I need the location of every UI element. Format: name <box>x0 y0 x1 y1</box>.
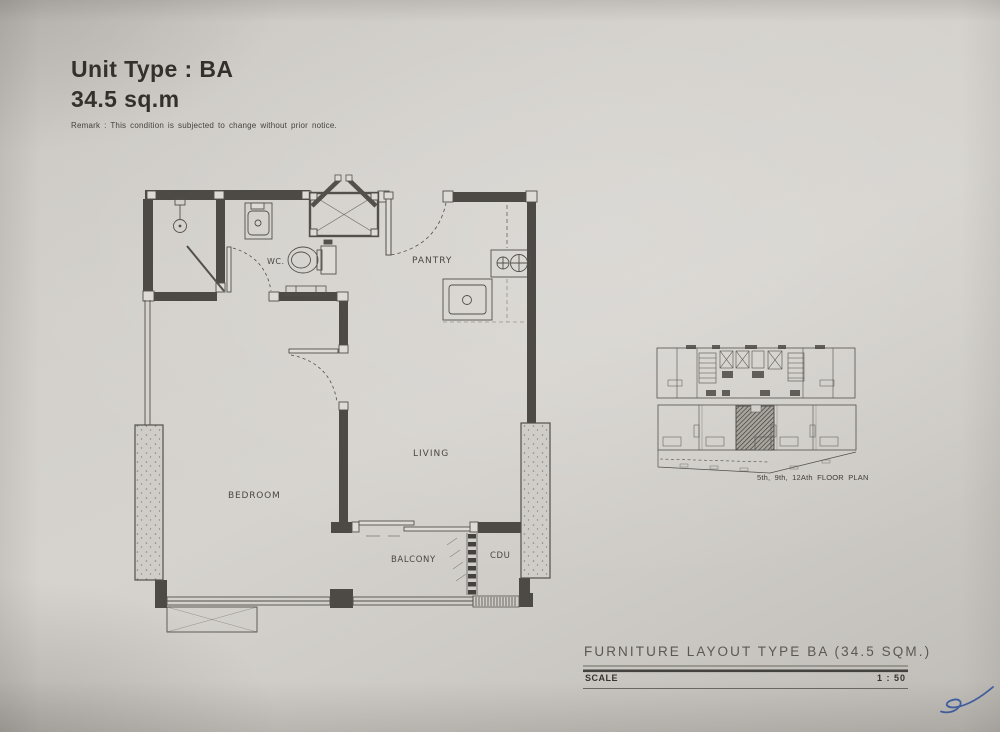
entrance-door <box>384 192 446 255</box>
balcony-cdu-divider <box>447 533 477 595</box>
scale-value: 1 : 50 <box>877 673 906 683</box>
room-label-bedroom: BEDROOM <box>228 491 281 501</box>
unit-area: 34.5 sq.m <box>71 86 179 113</box>
bedroom-south-window <box>167 597 330 605</box>
bathroom-door <box>227 247 271 292</box>
remark-note: Remark : This condition is subjected to … <box>71 121 337 130</box>
highlighted-unit <box>736 405 774 450</box>
room-label-living: LIVING <box>413 449 449 459</box>
ac-ledge-box <box>167 607 257 632</box>
page-title: Unit Type : BA <box>71 56 233 83</box>
kitchen-sink-icon <box>443 279 492 320</box>
balcony-railing <box>353 597 473 605</box>
stove-icon <box>491 250 530 277</box>
bedroom-west-window <box>145 300 150 425</box>
signature-mark <box>941 687 993 712</box>
shaft <box>310 175 378 236</box>
balcony-sliding-door <box>359 521 470 531</box>
core-stairs-lifts <box>686 345 825 396</box>
room-label-wc: WC. <box>267 257 285 266</box>
shower-icon <box>174 199 187 233</box>
key-plan <box>657 345 856 473</box>
toilet-icon <box>288 240 336 274</box>
room-label-balcony: BALCONY <box>391 555 436 565</box>
key-plan-caption: 5th, 9th, 12Ath FLOOR PLAN <box>757 473 869 482</box>
room-label-pantry: PANTRY <box>412 256 452 266</box>
key-plan-wedge <box>658 450 856 473</box>
left-column <box>135 425 163 580</box>
room-label-cdu: CDU <box>490 551 511 561</box>
scanned-floorplan-sheet: Unit Type : BA 34.5 sq.m Remark : This c… <box>0 0 1000 732</box>
right-column <box>521 423 550 578</box>
bedroom-door <box>289 349 338 402</box>
washbasin-icon <box>245 203 272 239</box>
scale-label: SCALE <box>585 673 618 683</box>
drawing-title: FURNITURE LAYOUT TYPE BA (34.5 SQM.) <box>584 644 931 659</box>
title-block-rules <box>583 666 908 689</box>
unit-floor-plan <box>135 175 550 632</box>
cdu-louver <box>473 596 519 607</box>
